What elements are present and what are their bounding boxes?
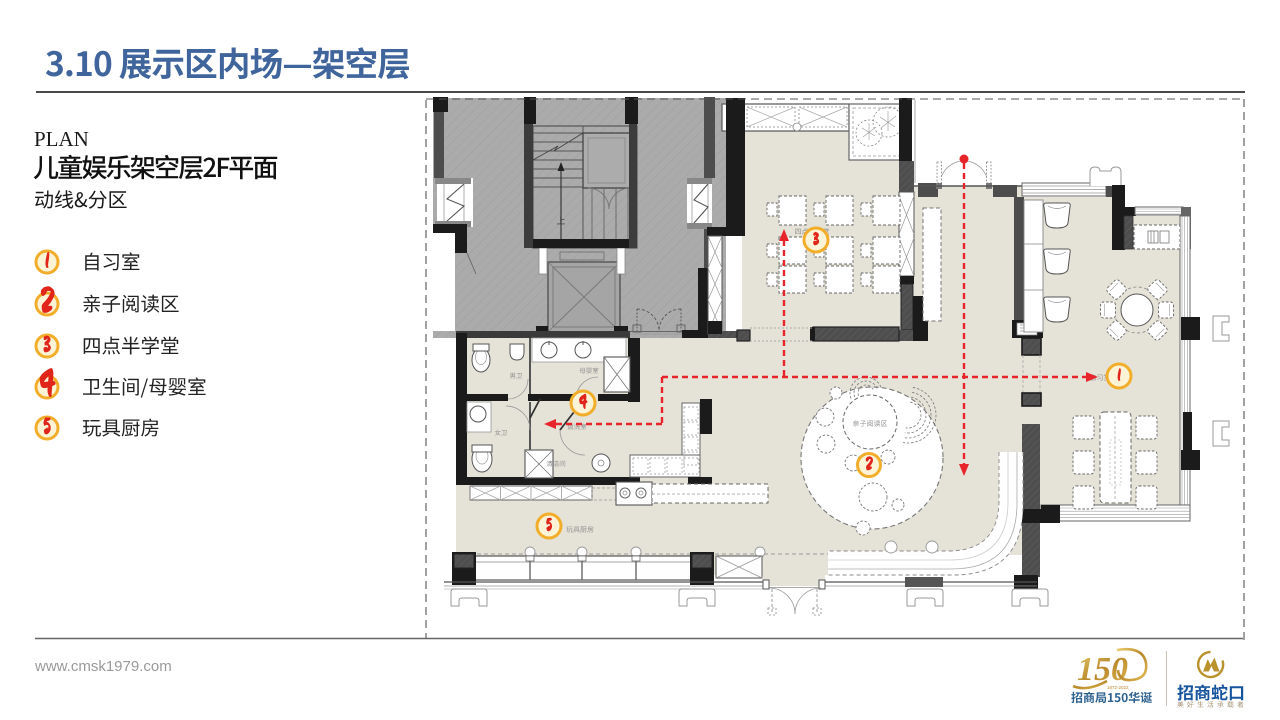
svg-text:www.cmsk1979.com: www.cmsk1979.com [34, 658, 172, 675]
svg-text:1872-2022: 1872-2022 [1107, 685, 1129, 690]
svg-text:PLAN: PLAN [34, 127, 89, 151]
